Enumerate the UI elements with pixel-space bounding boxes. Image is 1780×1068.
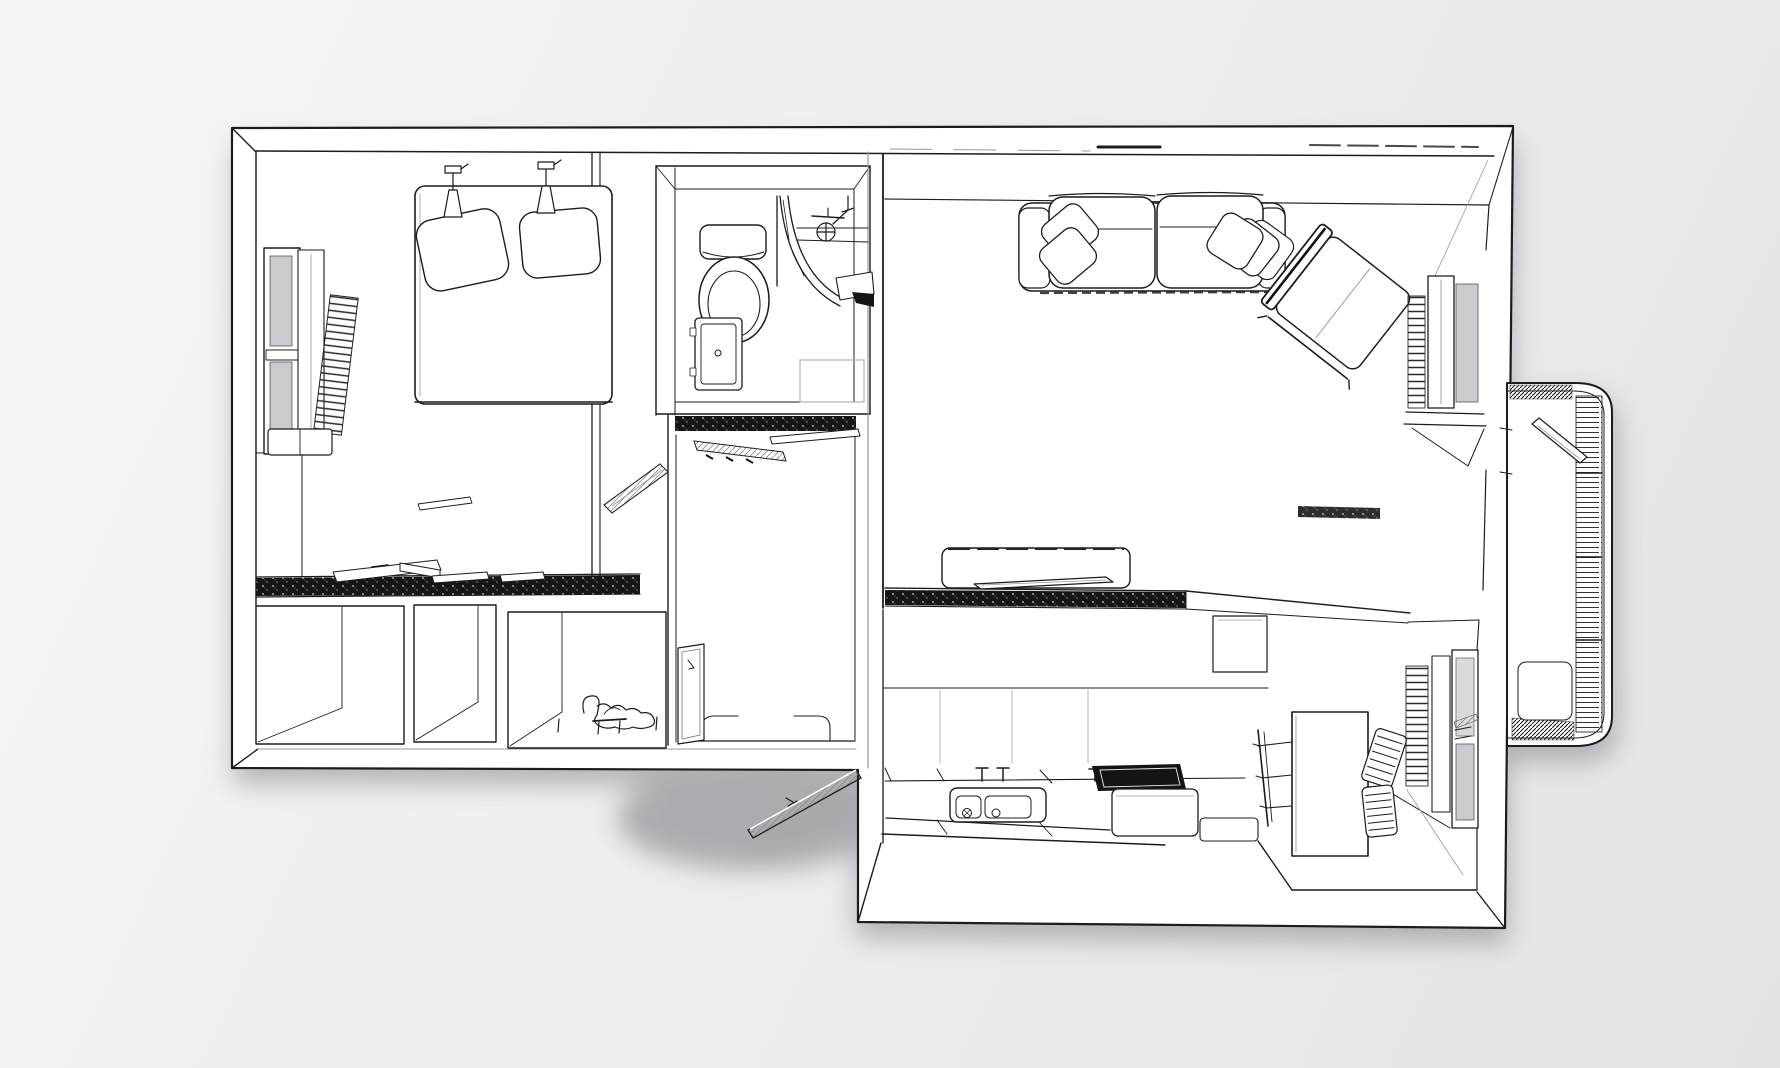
window-ledge-band [1298, 506, 1380, 519]
door-leaf [690, 318, 742, 390]
balcony-railing-bottom [1512, 718, 1574, 740]
kitchen-wall-band [885, 590, 1186, 608]
double-sink [950, 788, 1046, 822]
two-seat-sofa [1019, 193, 1298, 294]
double-bed [413, 186, 612, 404]
floor-plan-drawing [0, 0, 1780, 1068]
balcony-railing-top [1510, 385, 1572, 399]
pillow [518, 207, 601, 280]
cooktop [1092, 764, 1186, 791]
dining-chair-right2 [1362, 785, 1398, 838]
wall-mirror [678, 644, 704, 744]
render-viewport[interactable] [0, 0, 1780, 1068]
dining-table [1292, 712, 1368, 856]
tv-sideboard [942, 548, 1130, 589]
window-radiator [1408, 296, 1425, 408]
fridge-cabinet [1213, 616, 1267, 672]
balcony-railing-side [1576, 396, 1602, 732]
balcony-floor-panel [1518, 662, 1572, 720]
balcony [1500, 383, 1612, 746]
window-radiator [1406, 666, 1428, 786]
hall-wall-band [675, 416, 856, 431]
closet-box-1 [256, 606, 404, 744]
nightstand [268, 429, 332, 455]
